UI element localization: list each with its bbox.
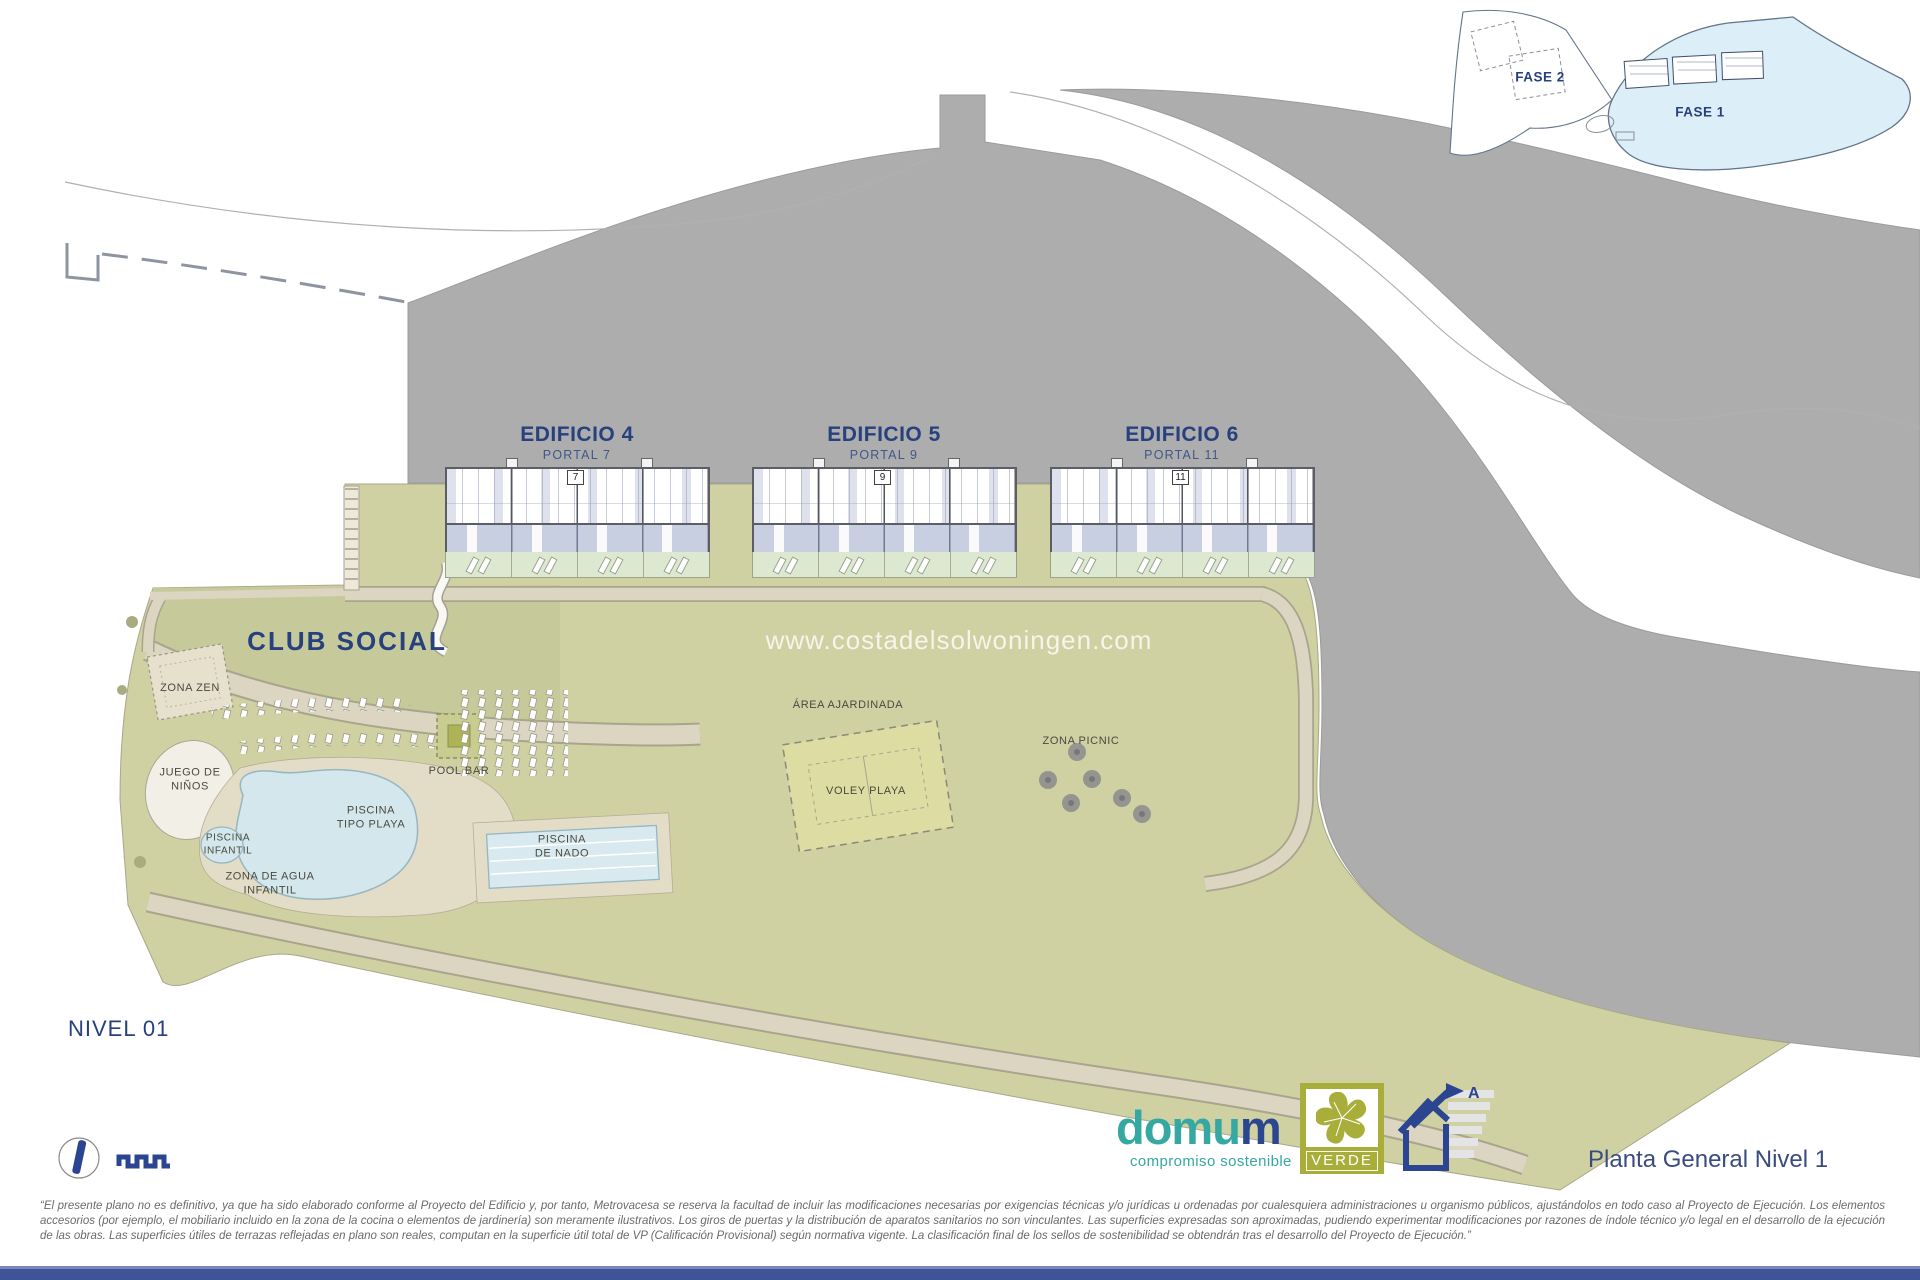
plan-title: Planta General Nivel 1 — [1588, 1146, 1828, 1174]
building-edificio-5: 9 — [752, 467, 1017, 580]
zona-zen-label: ZONA ZEN — [160, 682, 220, 696]
garden-cell — [885, 552, 951, 577]
voley-playa-label: VOLEY PLAYA — [826, 785, 906, 799]
piscina-nado-label: PISCINA DE NADO — [535, 833, 589, 861]
garden-cell — [819, 552, 885, 577]
legal-disclaimer: “El presente plano no es definitivo, ya … — [40, 1199, 1885, 1244]
garden-cell — [512, 552, 578, 577]
building-4-title: EDIFICIO 4 — [520, 422, 634, 448]
building-5-title: EDIFICIO 5 — [827, 422, 941, 448]
garden-band — [1050, 552, 1315, 578]
fase-2-label: FASE 2 — [1515, 70, 1565, 87]
garden-cell — [446, 552, 512, 577]
terrace-band — [752, 525, 1017, 552]
juego-ninos-label: JUEGO DE NIÑOS — [159, 766, 220, 794]
zona-agua-infantil-label: ZONA DE AGUA INFANTIL — [225, 870, 314, 898]
verde-flower-icon — [1306, 1089, 1378, 1147]
building-floorplan: 9 — [752, 467, 1017, 525]
garden-band — [445, 552, 710, 578]
domum-logo-text: domu — [1116, 1101, 1240, 1154]
garden-cell — [1183, 552, 1249, 577]
energy-rating-letter: A — [1468, 1085, 1480, 1102]
building-6-title: EDIFICIO 6 — [1125, 422, 1239, 448]
building-6-portal: PORTAL 11 — [1144, 448, 1220, 464]
building-floorplan: 7 — [445, 467, 710, 525]
garden-cell — [951, 552, 1016, 577]
portal-number-tag: 11 — [1172, 470, 1189, 485]
bottom-accent-bar — [0, 1266, 1920, 1280]
garden-cell — [644, 552, 709, 577]
domum-tagline: compromiso sostenible — [1130, 1153, 1292, 1170]
watermark: www.costadelsolwoningen.com — [766, 624, 1153, 657]
piscina-tipo-playa-label: PISCINA TIPO PLAYA — [337, 804, 406, 832]
piscina-infantil-label: PISCINA INFANTIL — [204, 833, 253, 858]
verde-label: VERDE — [1306, 1151, 1378, 1171]
fase-1-label: FASE 1 — [1675, 105, 1725, 122]
garden-cell — [578, 552, 644, 577]
energy-rating-icon: A — [1390, 1078, 1510, 1178]
area-ajardinada-label: ÁREA AJARDINADA — [793, 699, 903, 713]
building-5-portal: PORTAL 9 — [850, 448, 918, 464]
portal-number-tag: 9 — [874, 470, 891, 485]
level-label: NIVEL 01 — [68, 1016, 169, 1042]
compass-icon — [59, 1138, 99, 1178]
terrace-band — [445, 525, 710, 552]
pool-bar-label: POOL BAR — [429, 765, 490, 779]
garden-cell — [1117, 552, 1183, 577]
garden-band — [752, 552, 1017, 578]
garden-cell — [1249, 552, 1314, 577]
garden-cell — [1051, 552, 1117, 577]
building-edificio-4: 7 — [445, 467, 710, 580]
zona-picnic-label: ZONA PICNIC — [1043, 735, 1120, 749]
building-edificio-6: 11 — [1050, 467, 1315, 580]
garden-cell — [753, 552, 819, 577]
building-4-portal: PORTAL 7 — [543, 448, 611, 464]
portal-number-tag: 7 — [567, 470, 584, 485]
site-plan-page: 7 9 11 — [0, 0, 1920, 1280]
domum-logo: domum compromiso sostenible — [1116, 1104, 1292, 1170]
terrace-band — [1050, 525, 1315, 552]
building-floorplan: 11 — [1050, 467, 1315, 525]
scale-bar-icon — [119, 1157, 170, 1166]
club-social-label: CLUB SOCIAL — [247, 625, 447, 658]
verde-certification-badge: VERDE — [1300, 1083, 1384, 1174]
